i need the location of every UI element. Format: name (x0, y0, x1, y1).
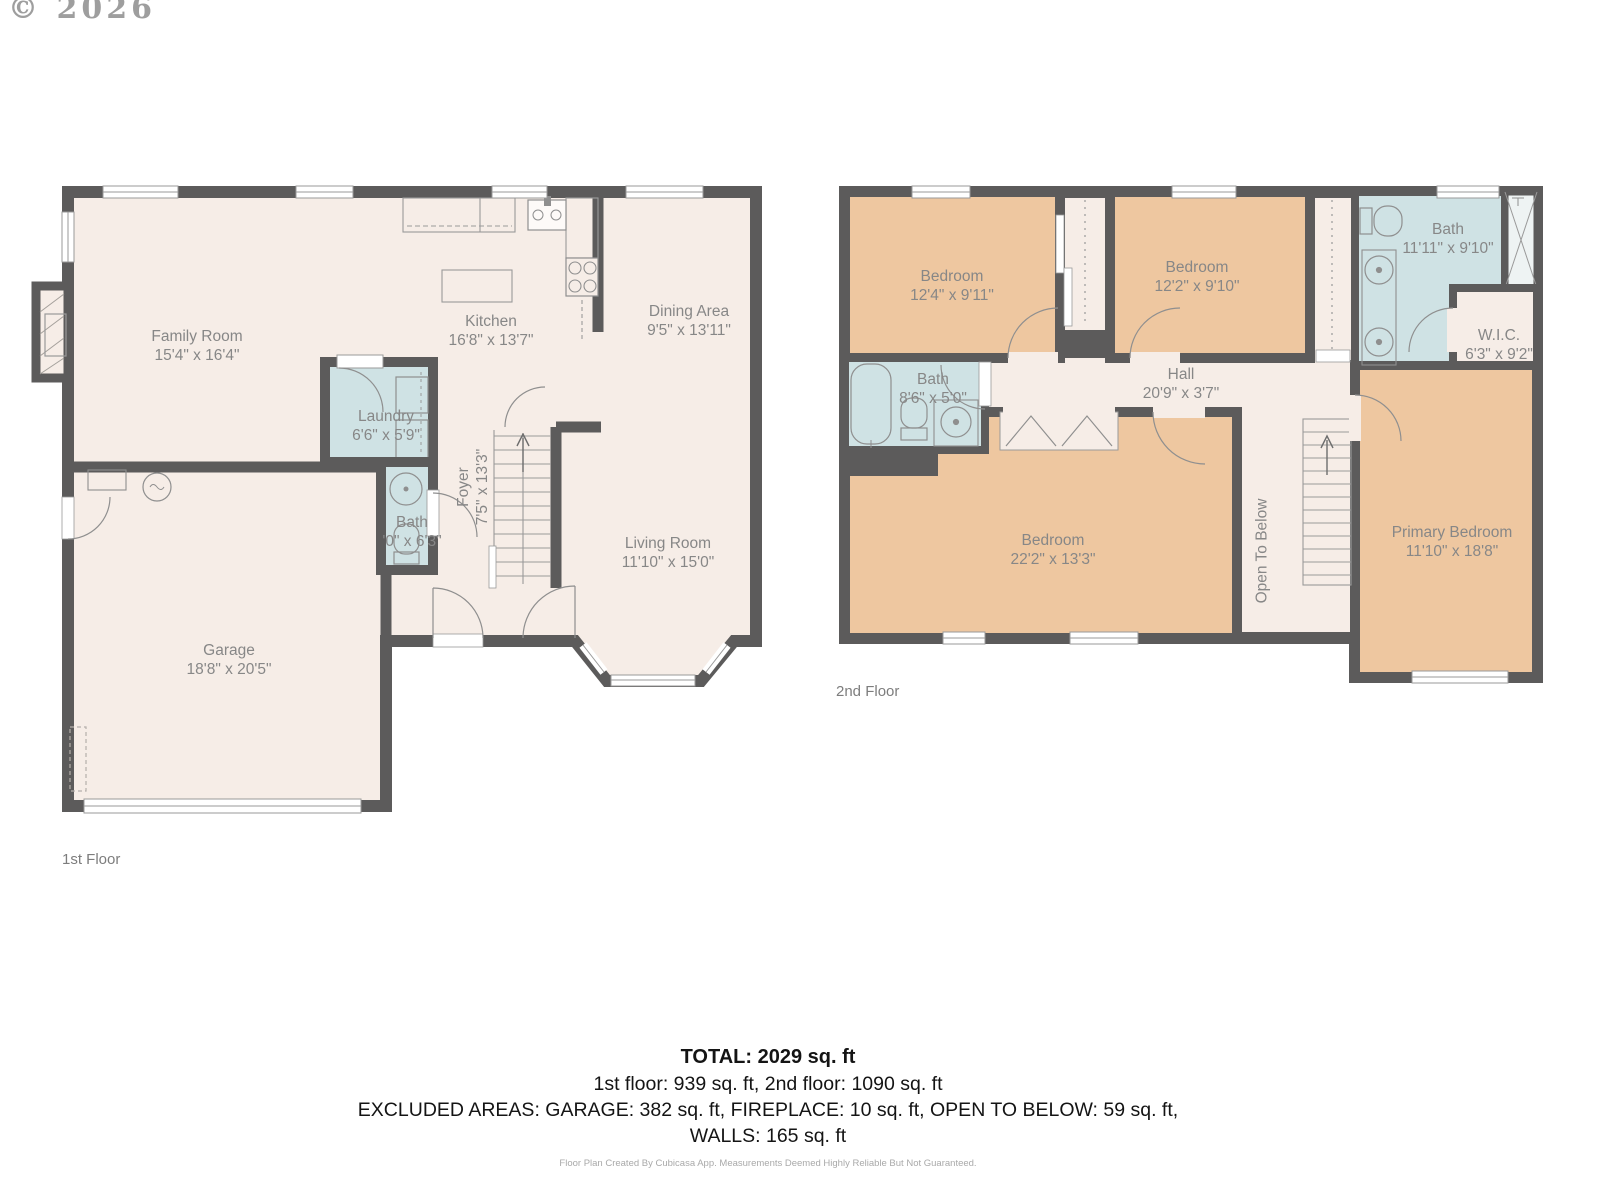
room-name: Bedroom (910, 267, 994, 286)
room-dims: '0" x 6'3" (382, 532, 441, 551)
room-name: Living Room (622, 534, 714, 553)
room-label-family-room: Family Room 15'4" x 16'4" (151, 327, 242, 365)
room-label-garage: Garage 18'8" x 20'5" (186, 641, 271, 679)
room-dims: 7'5" x 13'3" (473, 449, 492, 525)
room-label-living-room: Living Room 11'10" x 15'0" (622, 534, 714, 572)
first-floor-plan (36, 186, 756, 813)
room-name: Primary Bedroom (1392, 523, 1513, 542)
room-name: Family Room (151, 327, 242, 346)
disclaimer-text: Floor Plan Created By Cubicasa App. Meas… (0, 1158, 1536, 1169)
room-label-kitchen: Kitchen 16'8" x 13'7" (448, 312, 533, 350)
room-name: Garage (186, 641, 271, 660)
room-name: W.I.C. (1465, 326, 1533, 345)
kitchen-sink (528, 196, 566, 230)
room-name: Foyer (454, 449, 473, 525)
room-dims: 8'6" x 5'0" (899, 389, 967, 408)
room-dims: 22'2" x 13'3" (1010, 550, 1095, 569)
room-dims: 12'2" x 9'10" (1154, 277, 1239, 296)
room-name: Open To Below (1253, 499, 1272, 604)
room-name: Bedroom (1154, 258, 1239, 277)
room-label-bath-main: Bath 11'11" x 9'10" (1402, 220, 1493, 258)
room-dims: 6'6" x 5'9" (352, 426, 420, 445)
room-label-primary-bedroom: Primary Bedroom 11'10" x 18'8" (1392, 523, 1513, 561)
room-dims: 11'10" x 18'8" (1392, 542, 1513, 561)
room-label-bedroom-3: Bedroom 22'2" x 13'3" (1010, 531, 1095, 569)
room-label-hall: Hall 20'9" x 3'7" (1143, 365, 1219, 403)
room-name: Laundry (352, 407, 420, 426)
room-name: Bath (382, 513, 441, 532)
floor-areas-line: 1st floor: 939 sq. ft, 2nd floor: 1090 s… (0, 1073, 1536, 1096)
excluded-areas-line: EXCLUDED AREAS: GARAGE: 382 sq. ft, FIRE… (0, 1099, 1536, 1122)
room-dims: 11'10" x 15'0" (622, 553, 714, 572)
room-label-bath-first: Bath '0" x 6'3" (382, 513, 441, 551)
room-label-bath-hall: Bath 8'6" x 5'0" (899, 370, 967, 408)
room-name: Dining Area (647, 302, 731, 321)
wall-notch (845, 450, 938, 476)
closet-strip-stub (1060, 330, 1110, 358)
room-dims: 15'4" x 16'4" (151, 346, 242, 365)
room-label-dining-area: Dining Area 9'5" x 13'11" (647, 302, 731, 340)
area-summary: TOTAL: 2029 sq. ft 1st floor: 939 sq. ft… (0, 1046, 1536, 1151)
room-name: Hall (1143, 365, 1219, 384)
room-dims: 6'3" x 9'2" (1465, 345, 1533, 364)
room-dims: 11'11" x 9'10" (1402, 239, 1493, 258)
room-dims: 20'9" x 3'7" (1143, 384, 1219, 403)
room-dims: 9'5" x 13'11" (647, 321, 731, 340)
room-label-open-to-below: Open To Below (1253, 499, 1272, 604)
room-dims: 18'8" x 20'5" (186, 660, 271, 679)
room-label-foyer: Foyer 7'5" x 13'3" (454, 449, 492, 525)
room-dims: 12'4" x 9'11" (910, 286, 994, 305)
room-name: Bath (899, 370, 967, 389)
room-name: Kitchen (448, 312, 533, 331)
room-label-bedroom-2: Bedroom 12'2" x 9'10" (1154, 258, 1239, 296)
stove (566, 258, 598, 296)
floor-plan-canvas (0, 0, 1600, 1200)
floor-plan-page: { "copyright": "© 2026", "colors": { "wa… (0, 0, 1600, 1200)
walls-area-line: WALLS: 165 sq. ft (0, 1125, 1536, 1148)
room-label-laundry: Laundry 6'6" x 5'9" (352, 407, 420, 445)
room-label-wic: W.I.C. 6'3" x 9'2" (1465, 326, 1533, 364)
room-dims: 16'8" x 13'7" (448, 331, 533, 350)
second-floor-tag: 2nd Floor (836, 683, 899, 700)
fireplace (36, 286, 68, 378)
room-label-bedroom-1: Bedroom 12'4" x 9'11" (910, 267, 994, 305)
room-name: Bath (1402, 220, 1493, 239)
primary-bedroom-area (1355, 365, 1537, 677)
bifold-closet (1000, 407, 1118, 450)
first-floor-tag: 1st Floor (62, 851, 120, 868)
room-name: Bedroom (1010, 531, 1095, 550)
total-area-line: TOTAL: 2029 sq. ft (0, 1046, 1536, 1069)
